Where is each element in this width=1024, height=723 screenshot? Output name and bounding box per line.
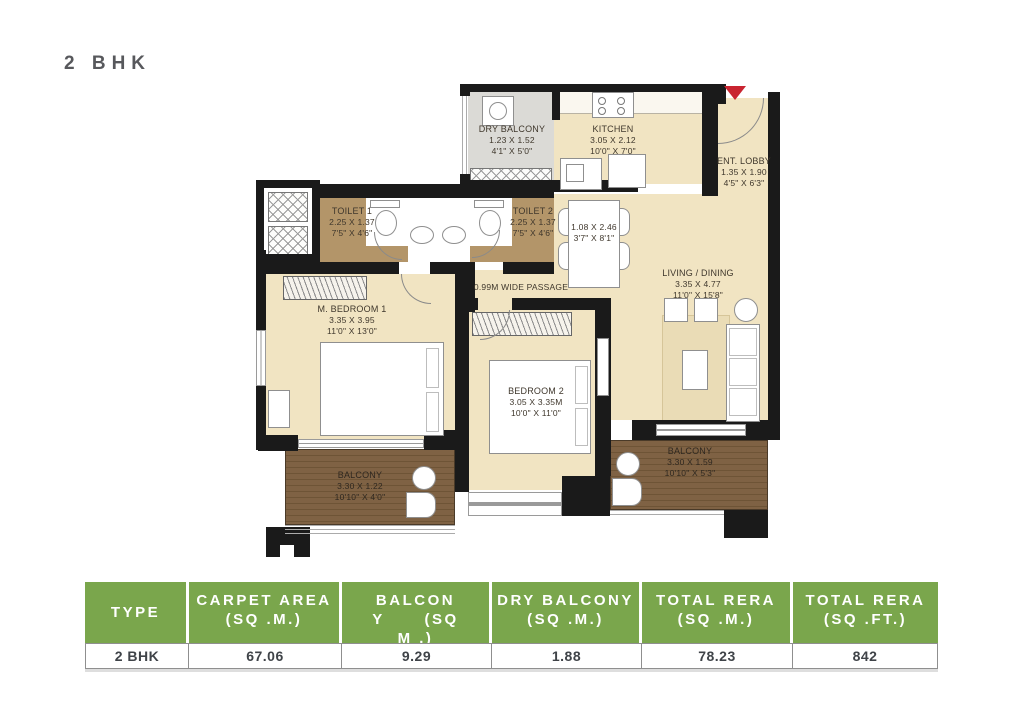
- entrance-arrow-icon: [724, 86, 746, 100]
- window: [468, 492, 562, 516]
- wall-segment: [724, 510, 768, 538]
- wall-notch: [280, 545, 294, 557]
- sofa-cushion: [729, 388, 757, 416]
- room-label-bedroom2: BEDROOM 2 3.05 X 3.35M 10'0" X 11'0": [484, 386, 588, 419]
- shaft-hatch: [268, 192, 308, 222]
- balcony-table: [412, 466, 436, 490]
- pillow: [426, 348, 439, 388]
- wall-segment: [768, 92, 780, 440]
- wall-segment: [552, 84, 560, 120]
- cell-balcony: 9.29: [342, 644, 492, 668]
- basin-icon: [442, 226, 466, 244]
- cell-total-rera-sqft: 842: [793, 644, 937, 668]
- pillow: [426, 392, 439, 432]
- wall-segment: [455, 298, 478, 310]
- wall-segment: [462, 84, 714, 92]
- armchair: [694, 298, 718, 322]
- balcony-railing: [462, 92, 470, 180]
- balcony-railing: [285, 525, 455, 535]
- cell-dry-balcony: 1.88: [492, 644, 642, 668]
- room-label-balcony-left: BALCONY 3.30 X 1.22 10'10" X 4'0": [308, 470, 412, 503]
- table-row: 2 BHK 67.06 9.29 1.88 78.23 842: [85, 643, 938, 669]
- washing-machine-drum: [489, 102, 507, 120]
- window: [298, 439, 424, 448]
- wardrobe: [283, 276, 367, 300]
- cell-total-rera-sqm: 78.23: [642, 644, 793, 668]
- room-label-toilet2: TOILET 2 2.25 X 1.37 7'5" X 4'6": [490, 206, 576, 239]
- stove-icon: [592, 92, 634, 118]
- window: [256, 330, 266, 386]
- coffee-table: [682, 350, 708, 390]
- cell-carpet-area: 67.06: [189, 644, 342, 668]
- basin-icon: [410, 226, 434, 244]
- round-table: [734, 298, 758, 322]
- wall-segment: [256, 180, 314, 188]
- page-title: 2 BHK: [64, 53, 151, 75]
- room-label-balcony-right: BALCONY 3.30 X 1.59 10'10" X 5'3": [638, 446, 742, 479]
- sink-basin: [566, 164, 584, 182]
- room-label-toilet1: TOILET 1 2.25 X 1.37 7'5" X 4'6": [312, 206, 392, 239]
- header-type: TYPE: [85, 582, 189, 643]
- wall-segment: [562, 476, 610, 516]
- header-total-rera-sqft: TOTAL RERA(SQ .FT.): [793, 582, 938, 643]
- header-carpet-area: CARPET AREA(SQ .M.): [189, 582, 342, 643]
- header-balcony: BALCONY (SQM .): [342, 582, 492, 643]
- sofa-cushion: [729, 358, 757, 386]
- balcony-table: [616, 452, 640, 476]
- room-label-living-dining: LIVING / DINING 3.35 X 4.77 11'0" X 15'8…: [648, 268, 748, 301]
- room-label-dry-balcony: DRY BALCONY 1.23 X 1.52 4'1" X 5'0": [474, 124, 550, 157]
- dining-table-label: 1.08 X 2.46 3'7" X 8'1": [568, 222, 620, 244]
- room-label-m-bedroom1: M. BEDROOM 1 3.35 X 3.95 11'0" X 13'0": [300, 304, 404, 337]
- passage-label: 0.99M WIDE PASSAGE: [436, 282, 606, 293]
- header-total-rera-sqm: TOTAL RERA(SQ .M.): [642, 582, 793, 643]
- nightstand: [268, 390, 290, 428]
- room-label-ent-lobby: ENT. LOBBY 1.35 X 1.90 4'5" X 6'3": [706, 156, 782, 189]
- header-dry-balcony: DRY BALCONY(SQ .M.): [492, 582, 642, 643]
- fridge-icon: [608, 154, 646, 188]
- wall-segment: [258, 254, 314, 262]
- cell-type: 2 BHK: [86, 644, 189, 668]
- area-table: TYPE CARPET AREA(SQ .M.) BALCONY (SQM .)…: [85, 582, 938, 669]
- sofa-cushion: [729, 328, 757, 356]
- balcony-chair: [612, 478, 642, 506]
- balcony-railing: [610, 510, 724, 518]
- wall-segment: [460, 84, 470, 96]
- shaft-hatch: [268, 226, 308, 256]
- area-table-header-row: TYPE CARPET AREA(SQ .M.) BALCONY (SQM .)…: [85, 582, 938, 643]
- armchair: [664, 298, 688, 322]
- wall-segment: [503, 262, 554, 274]
- wall-segment: [314, 184, 554, 198]
- floor-plan: DRY BALCONY 1.23 X 1.52 4'1" X 5'0" KITC…: [256, 84, 796, 562]
- room-label-kitchen: KITCHEN 3.05 X 2.12 10'0" X 7'0": [553, 124, 673, 157]
- tv-unit: [597, 338, 609, 396]
- window: [656, 424, 746, 436]
- wall-segment: [430, 262, 457, 274]
- wall-segment: [258, 262, 399, 274]
